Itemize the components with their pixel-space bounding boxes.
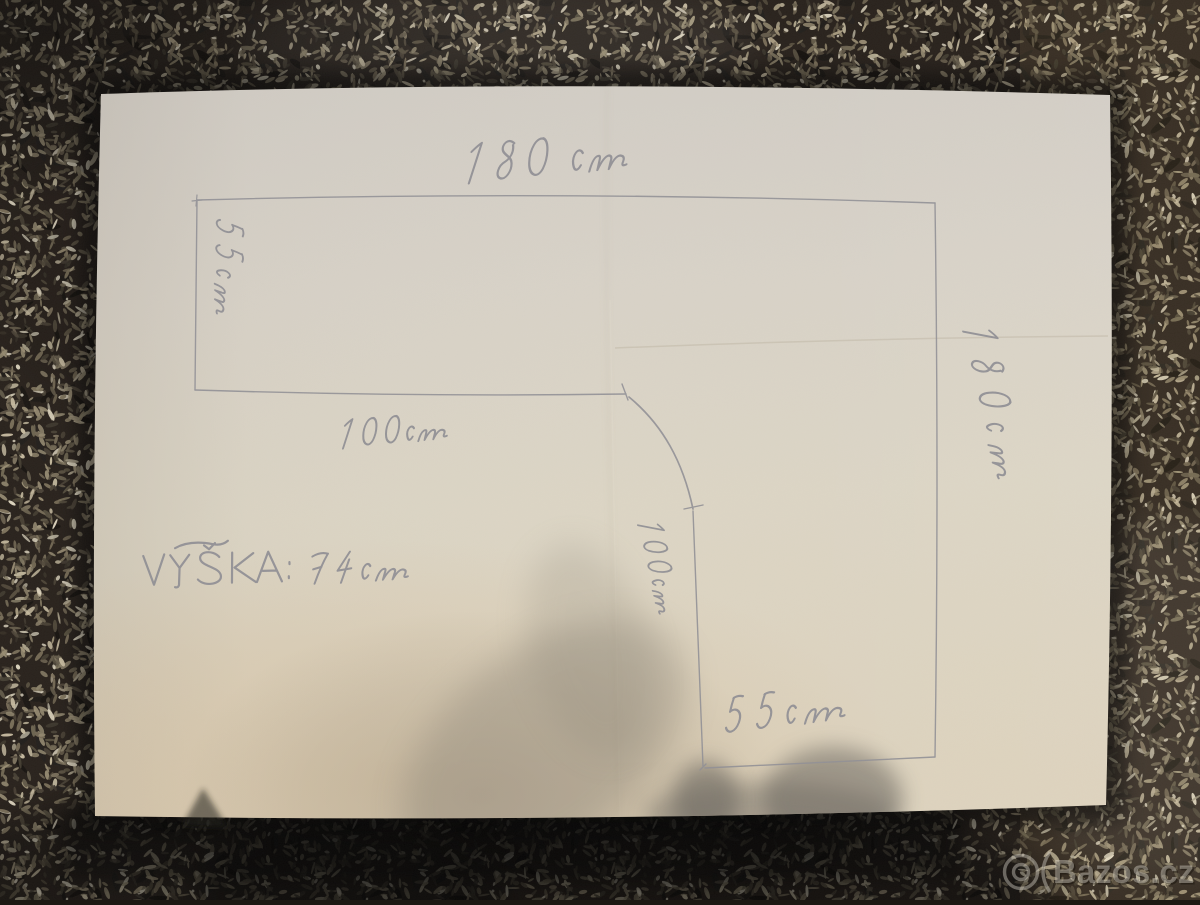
svg-text:Bazos.cz: Bazos.cz	[1053, 853, 1194, 890]
